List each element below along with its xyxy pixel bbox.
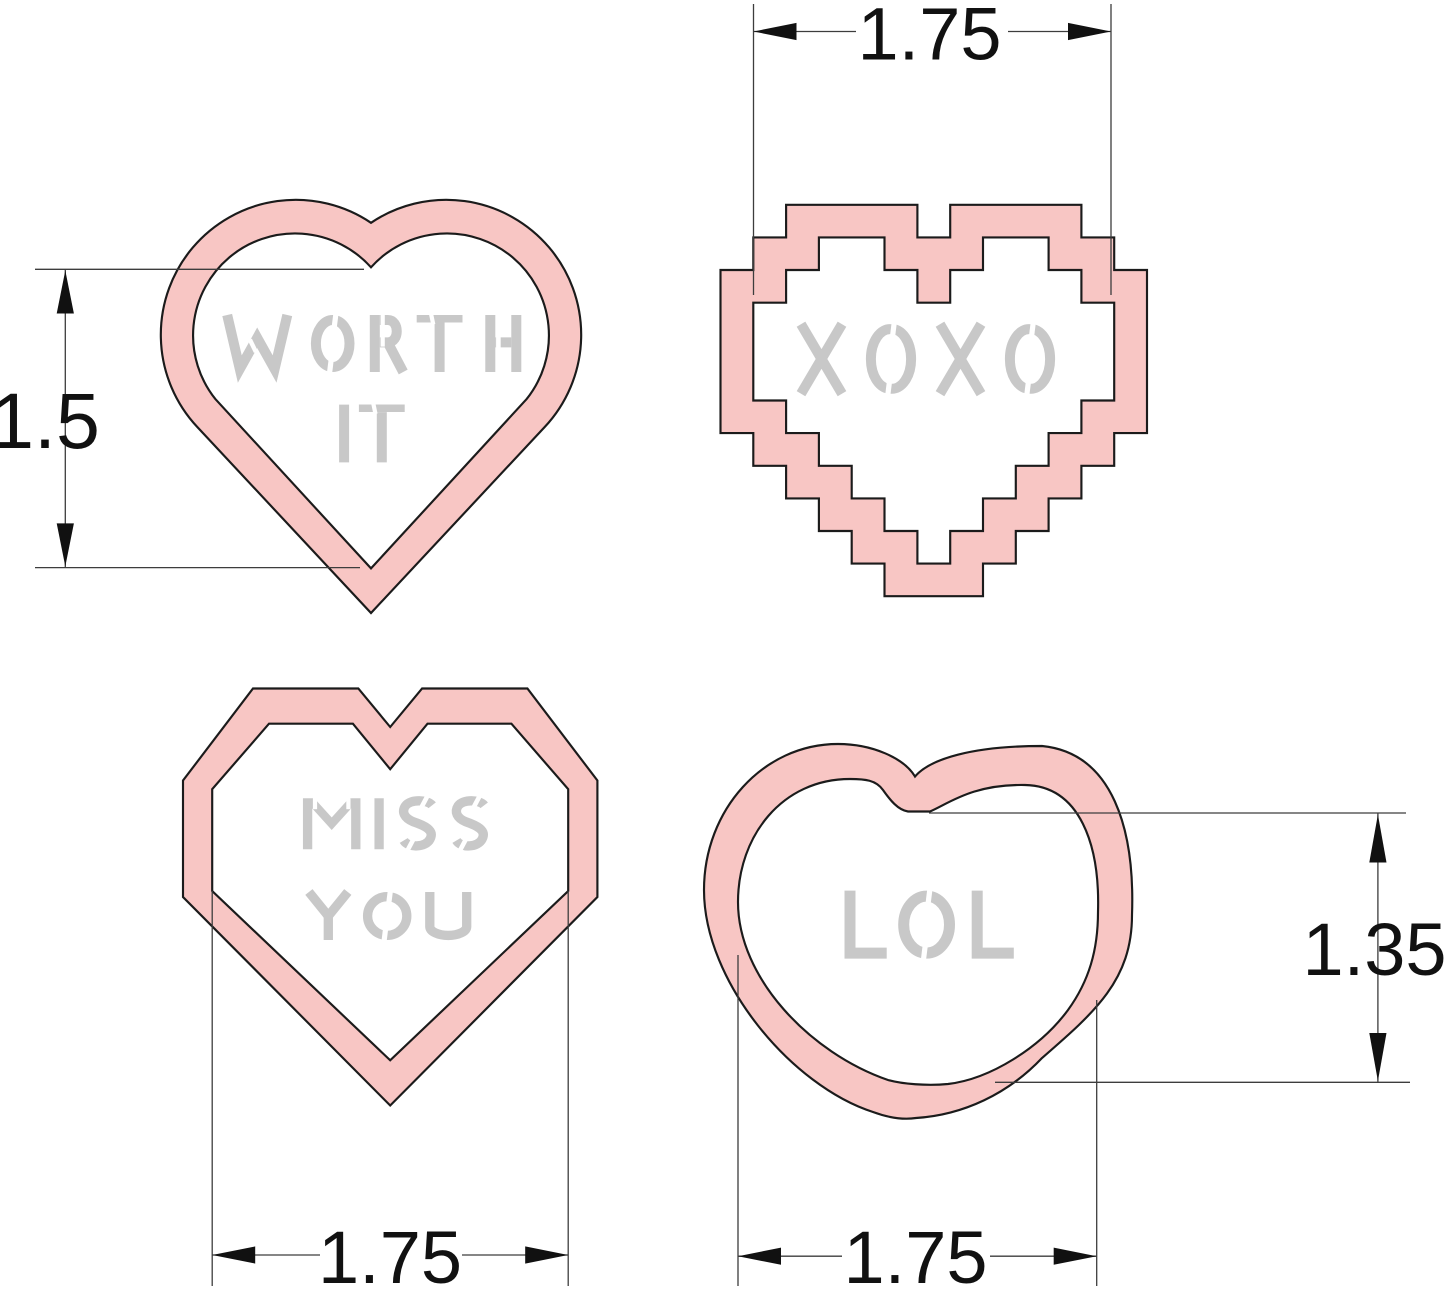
svg-text:1.75: 1.75 [857,0,1001,76]
svg-text:1.5: 1.5 [0,376,100,465]
svg-text:1.75: 1.75 [843,1216,987,1291]
svg-text:1.35: 1.35 [1302,908,1445,991]
svg-text:1.75: 1.75 [318,1216,462,1291]
